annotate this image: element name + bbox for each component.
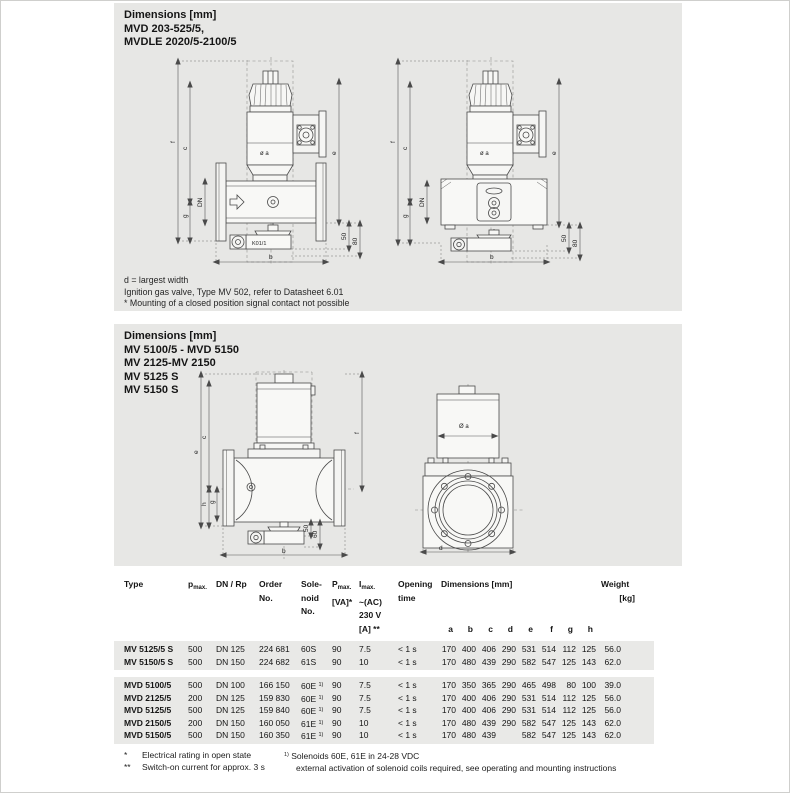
dim-label-e: e xyxy=(194,450,200,454)
cell-dim-a: 170 xyxy=(441,656,461,669)
cell-dim-h: 125 xyxy=(581,692,601,706)
cell-type: MVD 2150/5 xyxy=(124,717,188,731)
cell-open: < 1 s xyxy=(398,679,441,693)
cell-i: 10 xyxy=(359,729,398,743)
cell-dim-b: 480 xyxy=(461,717,481,731)
table-row: MVD 5150/5500DN 150160 35061E 1)9010< 1 … xyxy=(114,729,654,742)
cell-dim-h: 143 xyxy=(581,656,601,669)
dim-label-e: e xyxy=(331,151,338,155)
solenoid-footnote-marker: 1) xyxy=(319,732,324,738)
panel-title-line: MVDLE 2020/5-2100/5 xyxy=(124,36,237,50)
cell-dim-a: 170 xyxy=(441,704,461,718)
dim-label-b: b xyxy=(490,254,494,261)
panel-title-line: Dimensions [mm] xyxy=(124,9,237,23)
dim-label-f: f xyxy=(354,432,361,434)
panel1-title: Dimensions [mm] MVD 203-525/5, MVDLE 202… xyxy=(124,9,237,50)
cell-dn: DN 125 xyxy=(216,643,259,656)
dimension-letter-row: a b c d e f g h xyxy=(441,623,601,637)
cell-sol: 61S xyxy=(301,656,332,669)
table-group-mv-s: MV 5125/5 S500DN 125224 68160S907.5< 1 s… xyxy=(114,641,654,670)
cell-dim-c: 439 xyxy=(481,656,501,669)
cell-weight: 62.0 xyxy=(601,717,635,731)
col-header-current: Imax.~(AC)230 V[A] ** xyxy=(359,578,398,636)
dim-label-60: 60 xyxy=(312,530,319,538)
cell-dim-f: 514 xyxy=(541,704,561,718)
dim-label-80: 80 xyxy=(572,239,579,247)
cell-dim-b: 480 xyxy=(461,656,481,669)
cell-dim-c: 406 xyxy=(481,692,501,706)
col-header-dimensions: Dimensions [mm] a b c d e f g h xyxy=(441,578,601,636)
cell-i: 10 xyxy=(359,717,398,731)
table-header: Type pmax. DN / Rp OrderNo. Sole-noidNo.… xyxy=(114,578,654,636)
cell-dim-b: 400 xyxy=(461,692,481,706)
col-header-order: OrderNo. xyxy=(259,578,301,636)
cell-i: 7.5 xyxy=(359,704,398,718)
panel-title-line: Dimensions [mm] xyxy=(124,330,239,344)
footnote-marker: * xyxy=(124,750,142,762)
dim-label-c: c xyxy=(201,435,208,439)
footnote-marker: ** xyxy=(124,762,142,774)
solenoid-footnote-marker: 1) xyxy=(319,682,324,688)
footnote-text: Switch-on current for approx. 3 s xyxy=(142,762,265,774)
dim-label-e: e xyxy=(551,151,558,155)
cell-dim-e: 465 xyxy=(521,679,541,693)
col-header-pmax: pmax. xyxy=(188,578,216,636)
footnote-line: 1) Solenoids 60E, 61E in 24-28 VDC xyxy=(284,750,616,763)
cell-pmax: 500 xyxy=(188,656,216,669)
dim-label-dia-a: ø a xyxy=(480,151,489,157)
cell-pmax: 500 xyxy=(188,679,216,693)
cell-i: 10 xyxy=(359,656,398,669)
spec-table: Type pmax. DN / Rp OrderNo. Sole-noidNo.… xyxy=(114,578,654,744)
cell-p: 90 xyxy=(332,692,359,706)
footnote-text: external activation of solenoid coils re… xyxy=(296,763,616,773)
cell-dim-d xyxy=(501,729,521,743)
dim-label-50: 50 xyxy=(303,524,310,532)
cell-order: 224 681 xyxy=(259,643,301,656)
cell-dim-g: 112 xyxy=(561,692,581,706)
cell-open: < 1 s xyxy=(398,704,441,718)
cell-sol: 60S xyxy=(301,643,332,656)
cell-dim-h: 143 xyxy=(581,717,601,731)
cell-dn: DN 125 xyxy=(216,692,259,706)
indicator-label-k011: K01/1 xyxy=(252,241,266,247)
dim-letter: a xyxy=(441,623,461,637)
cell-weight: 39.0 xyxy=(601,679,635,693)
valve-outline xyxy=(423,386,513,550)
dim-letter: g xyxy=(561,623,581,637)
cell-dim-e: 531 xyxy=(521,692,541,706)
dim-letter: h xyxy=(581,623,601,637)
dim-label-g: g xyxy=(182,214,189,218)
cell-dim-h: 100 xyxy=(581,679,601,693)
cell-order: 159 840 xyxy=(259,704,301,718)
table-row: MVD 5125/5500DN 125159 84060E 1)907.5< 1… xyxy=(114,704,654,717)
cell-dn: DN 150 xyxy=(216,656,259,669)
cell-dim-a: 170 xyxy=(441,679,461,693)
col-header-weight: Weight[kg] xyxy=(601,578,635,636)
table-row: MV 5125/5 S500DN 125224 68160S907.5< 1 s… xyxy=(114,643,654,656)
col-header-power: Pmax.[VA]* xyxy=(332,578,359,636)
cell-type: MV 5125/5 S xyxy=(124,643,188,656)
cell-pmax: 200 xyxy=(188,717,216,731)
cell-dim-h: 125 xyxy=(581,704,601,718)
cell-dim-g: 112 xyxy=(561,643,581,656)
dim-label-dn: DN xyxy=(197,197,204,207)
cell-weight: 62.0 xyxy=(601,729,635,743)
dim-letter: d xyxy=(501,623,521,637)
cell-type: MVD 2125/5 xyxy=(124,692,188,706)
valve-outline xyxy=(223,374,345,544)
cell-dim-f: 547 xyxy=(541,717,561,731)
panel-title-line: MV 5100/5 - MVD 5150 xyxy=(124,344,239,358)
cell-dim-h: 143 xyxy=(581,729,601,743)
cell-dim-e: 582 xyxy=(521,729,541,743)
dim-label-f: f xyxy=(170,141,177,143)
cell-dim-b: 400 xyxy=(461,704,481,718)
solenoid-footnote-marker: 1) xyxy=(319,707,324,713)
dimensions-panel-mvd: Dimensions [mm] MVD 203-525/5, MVDLE 202… xyxy=(114,3,682,311)
cell-p: 90 xyxy=(332,729,359,743)
dim-label-g: g xyxy=(402,214,409,218)
dim-letter: f xyxy=(541,623,561,637)
cell-dn: DN 100 xyxy=(216,679,259,693)
table-row: MVD 5100/5500DN 100166 15060E 1)907.5< 1… xyxy=(114,679,654,692)
technical-drawing-mv5100-side-view: e c h g f 50 60 b xyxy=(194,369,399,561)
technical-drawing-mvd-front-view: f c DN g e 50 80 b ø a xyxy=(389,55,603,267)
cell-dim-d: 290 xyxy=(501,643,521,656)
cell-dim-g: 112 xyxy=(561,704,581,718)
panel1-footnotes: d = largest width Ignition gas valve, Ty… xyxy=(124,275,349,310)
dim-letter: c xyxy=(481,623,501,637)
cell-pmax: 500 xyxy=(188,704,216,718)
cell-pmax: 500 xyxy=(188,729,216,743)
cell-pmax: 500 xyxy=(188,643,216,656)
col-header-type: Type xyxy=(124,578,188,636)
solenoid-footnote-marker: 1) xyxy=(319,695,324,701)
col-header-dn: DN / Rp xyxy=(216,578,259,636)
valve-outline xyxy=(216,71,326,249)
cell-dim-b: 400 xyxy=(461,643,481,656)
footnote-line: Ignition gas valve, Type MV 502, refer t… xyxy=(124,287,349,299)
cell-dim-g: 80 xyxy=(561,679,581,693)
cell-dim-f: 498 xyxy=(541,679,561,693)
cell-order: 160 350 xyxy=(259,729,301,743)
cell-dim-f: 547 xyxy=(541,656,561,669)
cell-i: 7.5 xyxy=(359,679,398,693)
cell-open: < 1 s xyxy=(398,729,441,743)
cell-dim-e: 531 xyxy=(521,704,541,718)
cell-dim-f: 514 xyxy=(541,692,561,706)
dimensions-panel-mv5100: Dimensions [mm] MV 5100/5 - MVD 5150 MV … xyxy=(114,324,682,566)
dim-label-d: d xyxy=(439,545,443,552)
cell-i: 7.5 xyxy=(359,692,398,706)
cell-dim-g: 125 xyxy=(561,717,581,731)
dim-label-dia-a: Ø a xyxy=(459,424,469,430)
cell-dn: DN 150 xyxy=(216,717,259,731)
cell-dn: DN 125 xyxy=(216,704,259,718)
cell-dim-e: 582 xyxy=(521,656,541,669)
table-row: MV 5150/5 S500DN 150224 68261S9010< 1 s1… xyxy=(114,656,654,669)
cell-dim-h: 125 xyxy=(581,643,601,656)
col-header-opening-time: Openingtime xyxy=(398,578,441,636)
cell-p: 90 xyxy=(332,717,359,731)
dim-label-c: c xyxy=(402,146,409,150)
valve-outline xyxy=(441,71,547,251)
cell-dim-a: 170 xyxy=(441,717,461,731)
cell-dim-c: 406 xyxy=(481,643,501,656)
cell-dim-a: 170 xyxy=(441,729,461,743)
dim-label-50: 50 xyxy=(561,234,568,242)
cell-weight: 56.0 xyxy=(601,704,635,718)
dim-letter: e xyxy=(521,623,541,637)
cell-dim-c: 365 xyxy=(481,679,501,693)
footnote-line: external activation of solenoid coils re… xyxy=(284,763,616,775)
cell-order: 166 150 xyxy=(259,679,301,693)
dim-label-50: 50 xyxy=(341,232,348,240)
dim-label-b: b xyxy=(269,254,273,261)
cell-open: < 1 s xyxy=(398,717,441,731)
cell-sol: 61E 1) xyxy=(301,729,332,743)
datasheet-page: Dimensions [mm] MVD 203-525/5, MVDLE 202… xyxy=(0,0,790,793)
cell-dim-d: 290 xyxy=(501,704,521,718)
cell-type: MVD 5150/5 xyxy=(124,729,188,743)
dim-letter: b xyxy=(461,623,481,637)
footnotes-left: * Electrical rating in open state ** Swi… xyxy=(124,750,265,773)
cell-dim-b: 350 xyxy=(461,679,481,693)
cell-dim-d: 290 xyxy=(501,717,521,731)
dim-label-b: b xyxy=(282,548,286,555)
technical-drawing-mv5100-front-view: Ø a d xyxy=(401,384,536,556)
cell-dim-d: 290 xyxy=(501,692,521,706)
cell-dim-c: 406 xyxy=(481,704,501,718)
cell-open: < 1 s xyxy=(398,643,441,656)
cell-open: < 1 s xyxy=(398,656,441,669)
cell-type: MV 5150/5 S xyxy=(124,656,188,669)
cell-order: 224 682 xyxy=(259,656,301,669)
col-header-solenoid: Sole-noidNo. xyxy=(301,578,332,636)
cell-dim-d: 290 xyxy=(501,679,521,693)
cell-open: < 1 s xyxy=(398,692,441,706)
cell-dim-a: 170 xyxy=(441,692,461,706)
cell-weight: 62.0 xyxy=(601,656,635,669)
dim-label-f: f xyxy=(390,141,397,143)
cell-p: 90 xyxy=(332,704,359,718)
solenoid-footnote-marker: 1) xyxy=(319,720,324,726)
cell-dim-d: 290 xyxy=(501,656,521,669)
cell-dim-c: 439 xyxy=(481,717,501,731)
dim-label-dn: DN xyxy=(419,197,426,207)
cell-type: MVD 5100/5 xyxy=(124,679,188,693)
footnote-line: d = largest width xyxy=(124,275,349,287)
cell-dim-a: 170 xyxy=(441,643,461,656)
cell-dim-g: 125 xyxy=(561,656,581,669)
cell-p: 90 xyxy=(332,656,359,669)
table-group-mvd: MVD 5100/5500DN 100166 15060E 1)907.5< 1… xyxy=(114,677,654,744)
cell-dim-f: 547 xyxy=(541,729,561,743)
footnote-text: Electrical rating in open state xyxy=(142,750,251,762)
footnote-marker: 1) xyxy=(284,752,289,758)
table-row: MVD 2150/5200DN 150160 05061E 1)9010< 1 … xyxy=(114,717,654,730)
cell-weight: 56.0 xyxy=(601,643,635,656)
cell-dim-c: 439 xyxy=(481,729,501,743)
footnote-text: Solenoids 60E, 61E in 24-28 VDC xyxy=(291,751,419,761)
cell-pmax: 200 xyxy=(188,692,216,706)
cell-weight: 56.0 xyxy=(601,692,635,706)
cell-p: 90 xyxy=(332,679,359,693)
cell-sol: 61E 1) xyxy=(301,717,332,731)
cell-sol: 60E 1) xyxy=(301,679,332,693)
table-row: MVD 2125/5200DN 125159 83060E 1)907.5< 1… xyxy=(114,692,654,705)
cell-sol: 60E 1) xyxy=(301,704,332,718)
cell-order: 160 050 xyxy=(259,717,301,731)
technical-drawing-mvd-side-view: f c DN g e 50 80 b ø a K01/1 xyxy=(169,55,383,267)
dim-label-c: c xyxy=(182,146,189,150)
cell-sol: 60E 1) xyxy=(301,692,332,706)
dim-label-h: h xyxy=(201,502,208,506)
footnote-line: * Electrical rating in open state xyxy=(124,750,265,762)
cell-dn: DN 150 xyxy=(216,729,259,743)
dim-label-dia-a: ø a xyxy=(260,151,269,157)
panel-title-line: MVD 203-525/5, xyxy=(124,23,237,37)
cell-type: MVD 5125/5 xyxy=(124,704,188,718)
cell-dim-b: 480 xyxy=(461,729,481,743)
footnotes-right: 1) Solenoids 60E, 61E in 24-28 VDC exter… xyxy=(284,750,616,774)
cell-p: 90 xyxy=(332,643,359,656)
cell-dim-g: 125 xyxy=(561,729,581,743)
dim-label-g: g xyxy=(209,500,216,504)
footnote-line: * Mounting of a closed position signal c… xyxy=(124,298,349,310)
cell-dim-f: 514 xyxy=(541,643,561,656)
cell-i: 7.5 xyxy=(359,643,398,656)
footnote-line: ** Switch-on current for approx. 3 s xyxy=(124,762,265,774)
cell-dim-e: 582 xyxy=(521,717,541,731)
dim-label-80: 80 xyxy=(352,237,359,245)
cell-dim-e: 531 xyxy=(521,643,541,656)
cell-order: 159 830 xyxy=(259,692,301,706)
